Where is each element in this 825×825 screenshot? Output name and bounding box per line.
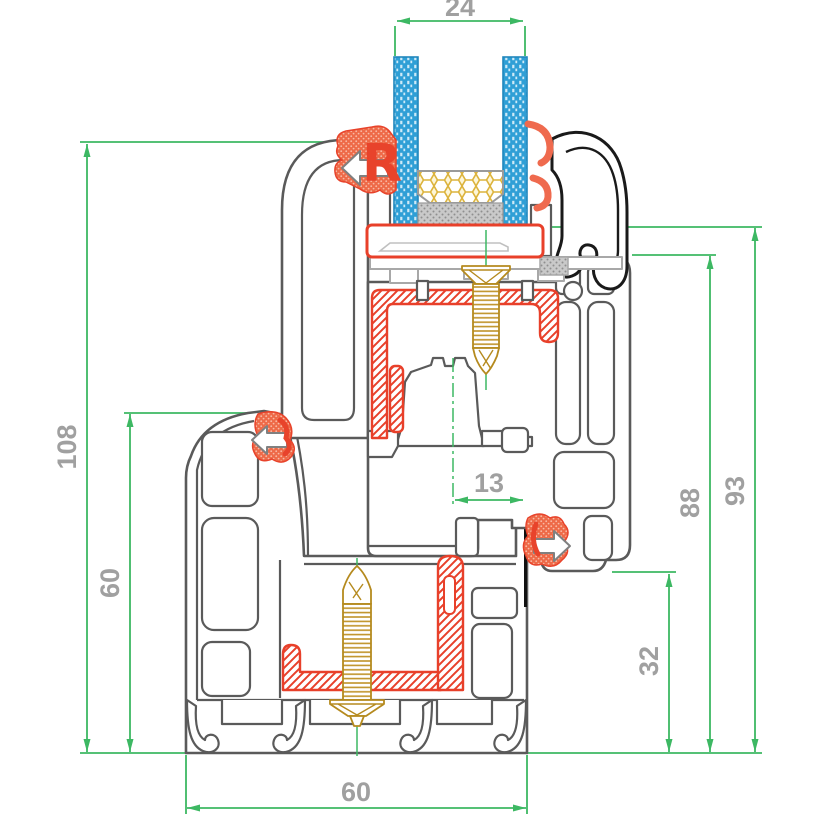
dimension-left-108: 108 bbox=[52, 144, 91, 752]
window-profile-drawing: R 24 bbox=[0, 0, 825, 825]
sash-chamber-4 bbox=[588, 302, 614, 444]
sash-chamber-5 bbox=[554, 452, 614, 508]
dimension-bottom-60: 60 bbox=[187, 777, 526, 812]
sash-chamber-6 bbox=[584, 516, 612, 560]
frame-chamber-5 bbox=[472, 624, 512, 698]
spacer-honeycomb bbox=[418, 171, 503, 203]
screw-bottom-thread bbox=[343, 604, 371, 700]
dim-label-24: 24 bbox=[445, 0, 475, 22]
screw-top-thread bbox=[473, 284, 499, 348]
frame-chamber-2 bbox=[202, 518, 258, 630]
sash-chamber-7 bbox=[502, 428, 528, 452]
glazing-packer-end bbox=[540, 257, 568, 275]
glazing-packer bbox=[367, 225, 543, 257]
dimension-right-32: 32 bbox=[634, 574, 673, 752]
frame-steel-slot bbox=[444, 576, 455, 614]
dimension-left-60: 60 bbox=[95, 414, 134, 752]
dim-label-60-bottom: 60 bbox=[341, 777, 371, 807]
frame-bottom-web-1 bbox=[222, 700, 282, 724]
dim-label-60-left: 60 bbox=[95, 568, 125, 598]
glass-pane-inner bbox=[503, 57, 527, 228]
gasket-bead-lower bbox=[533, 178, 548, 208]
gasket-top-cavity: R bbox=[362, 134, 402, 194]
frame-chamber-4 bbox=[472, 588, 517, 618]
frame-bottom-web-3 bbox=[437, 700, 492, 724]
dim-label-108: 108 bbox=[52, 424, 82, 469]
dimension-right-93: 93 bbox=[720, 228, 759, 752]
sash-left-chamber bbox=[302, 160, 354, 420]
dimension-top-24: 24 bbox=[397, 0, 523, 25]
dim-label-13: 13 bbox=[474, 468, 504, 498]
glazing-bridge-foot-1 bbox=[390, 269, 418, 283]
sash-chamber-3 bbox=[556, 302, 580, 444]
dimension-right-88: 88 bbox=[675, 256, 714, 752]
frame-chamber-3 bbox=[202, 642, 250, 696]
frame-chamber-1 bbox=[202, 432, 258, 506]
dim-label-32: 32 bbox=[634, 646, 664, 676]
gasket-bead-upper bbox=[528, 124, 550, 163]
dim-label-88: 88 bbox=[675, 488, 705, 518]
dim-label-93: 93 bbox=[720, 476, 750, 506]
sash-top-notch-2 bbox=[522, 281, 533, 300]
sash-steel-hook bbox=[390, 366, 403, 432]
sash-screw-port bbox=[564, 282, 582, 300]
sash-bottom-hook bbox=[456, 518, 478, 556]
sash-top-notch-1 bbox=[417, 281, 428, 300]
spacer-desiccant bbox=[418, 203, 503, 227]
